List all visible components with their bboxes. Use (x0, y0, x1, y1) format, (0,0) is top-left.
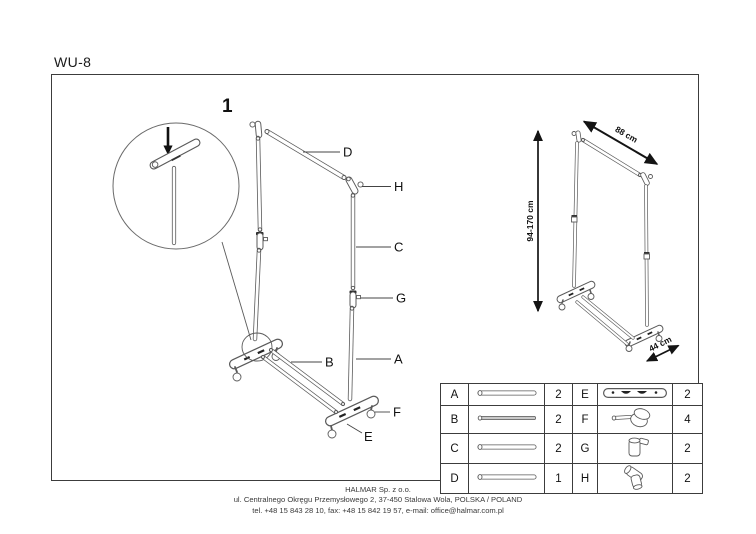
corner-connector (347, 177, 363, 191)
tube-long-icon (472, 439, 542, 455)
callout-g: G (396, 291, 406, 306)
part-qty: 2 (545, 406, 573, 434)
step-number: 1 (222, 96, 233, 117)
page-title: WU-8 (54, 54, 91, 70)
part-letter: F (573, 406, 598, 434)
part-qty: 2 (673, 384, 703, 406)
callout-d: D (343, 145, 352, 160)
base-foot-icon (599, 384, 671, 402)
dimensioned-rack-drawing: 94-170 cm 88 cm 44 cm (525, 122, 679, 362)
callout-h: H (394, 179, 403, 194)
part-qty: 2 (545, 384, 573, 406)
part-letter: A (441, 384, 469, 406)
part-icon-cell (469, 406, 545, 434)
callout-e: E (364, 429, 373, 444)
height-dimension-label: 94-170 cm (525, 200, 535, 242)
part-icon-cell (469, 384, 545, 406)
part-letter: C (441, 434, 469, 464)
table-row: A 2 E 2 (441, 384, 703, 406)
part-letter: E (573, 384, 598, 406)
callout-c: C (394, 240, 403, 255)
clamp-connector-icon (599, 434, 671, 460)
parts-table: A 2 E 2 B 2 F 4 C (440, 383, 703, 494)
part-qty: 2 (673, 434, 703, 464)
callout-f: F (393, 405, 401, 420)
callout-a: A (394, 352, 403, 367)
top-rail-piece (151, 140, 198, 169)
table-row: C 2 G 2 (441, 434, 703, 464)
tube-long-icon (472, 385, 542, 401)
table-row: B 2 F 4 (441, 406, 703, 434)
width-dimension: 88 cm (584, 122, 657, 165)
footer-company: HALMAR Sp. z o.o. (14, 485, 742, 495)
part-icon-cell (598, 406, 673, 434)
tube-thin-icon (472, 410, 542, 426)
part-icon-cell (598, 434, 673, 464)
part-qty: 2 (545, 434, 573, 464)
instruction-sheet: { "title": "WU-8", "step": "1", "callout… (0, 0, 756, 534)
callout-b: B (325, 355, 334, 370)
depth-dimension: 44 cm (647, 334, 679, 361)
height-dimension: 94-170 cm (525, 131, 538, 311)
footer: HALMAR Sp. z o.o. ul. Centralnego Okręgu… (14, 485, 742, 516)
part-icon-cell (469, 434, 545, 464)
detail-zoom-circle (113, 123, 251, 340)
tube-long-icon (472, 469, 542, 485)
part-letter: B (441, 406, 469, 434)
part-qty: 4 (673, 406, 703, 434)
top-bar (265, 130, 346, 180)
main-rack-drawing: D H C G A B F E (233, 122, 406, 444)
footer-contact: tel. +48 15 843 28 10, fax: +48 15 842 1… (14, 506, 742, 516)
footer-address: ul. Centralnego Okręgu Przemysłowego 2, … (14, 495, 742, 505)
caster-wheel-icon (599, 406, 671, 430)
part-icon-cell (598, 384, 673, 406)
part-letter: G (573, 434, 598, 464)
